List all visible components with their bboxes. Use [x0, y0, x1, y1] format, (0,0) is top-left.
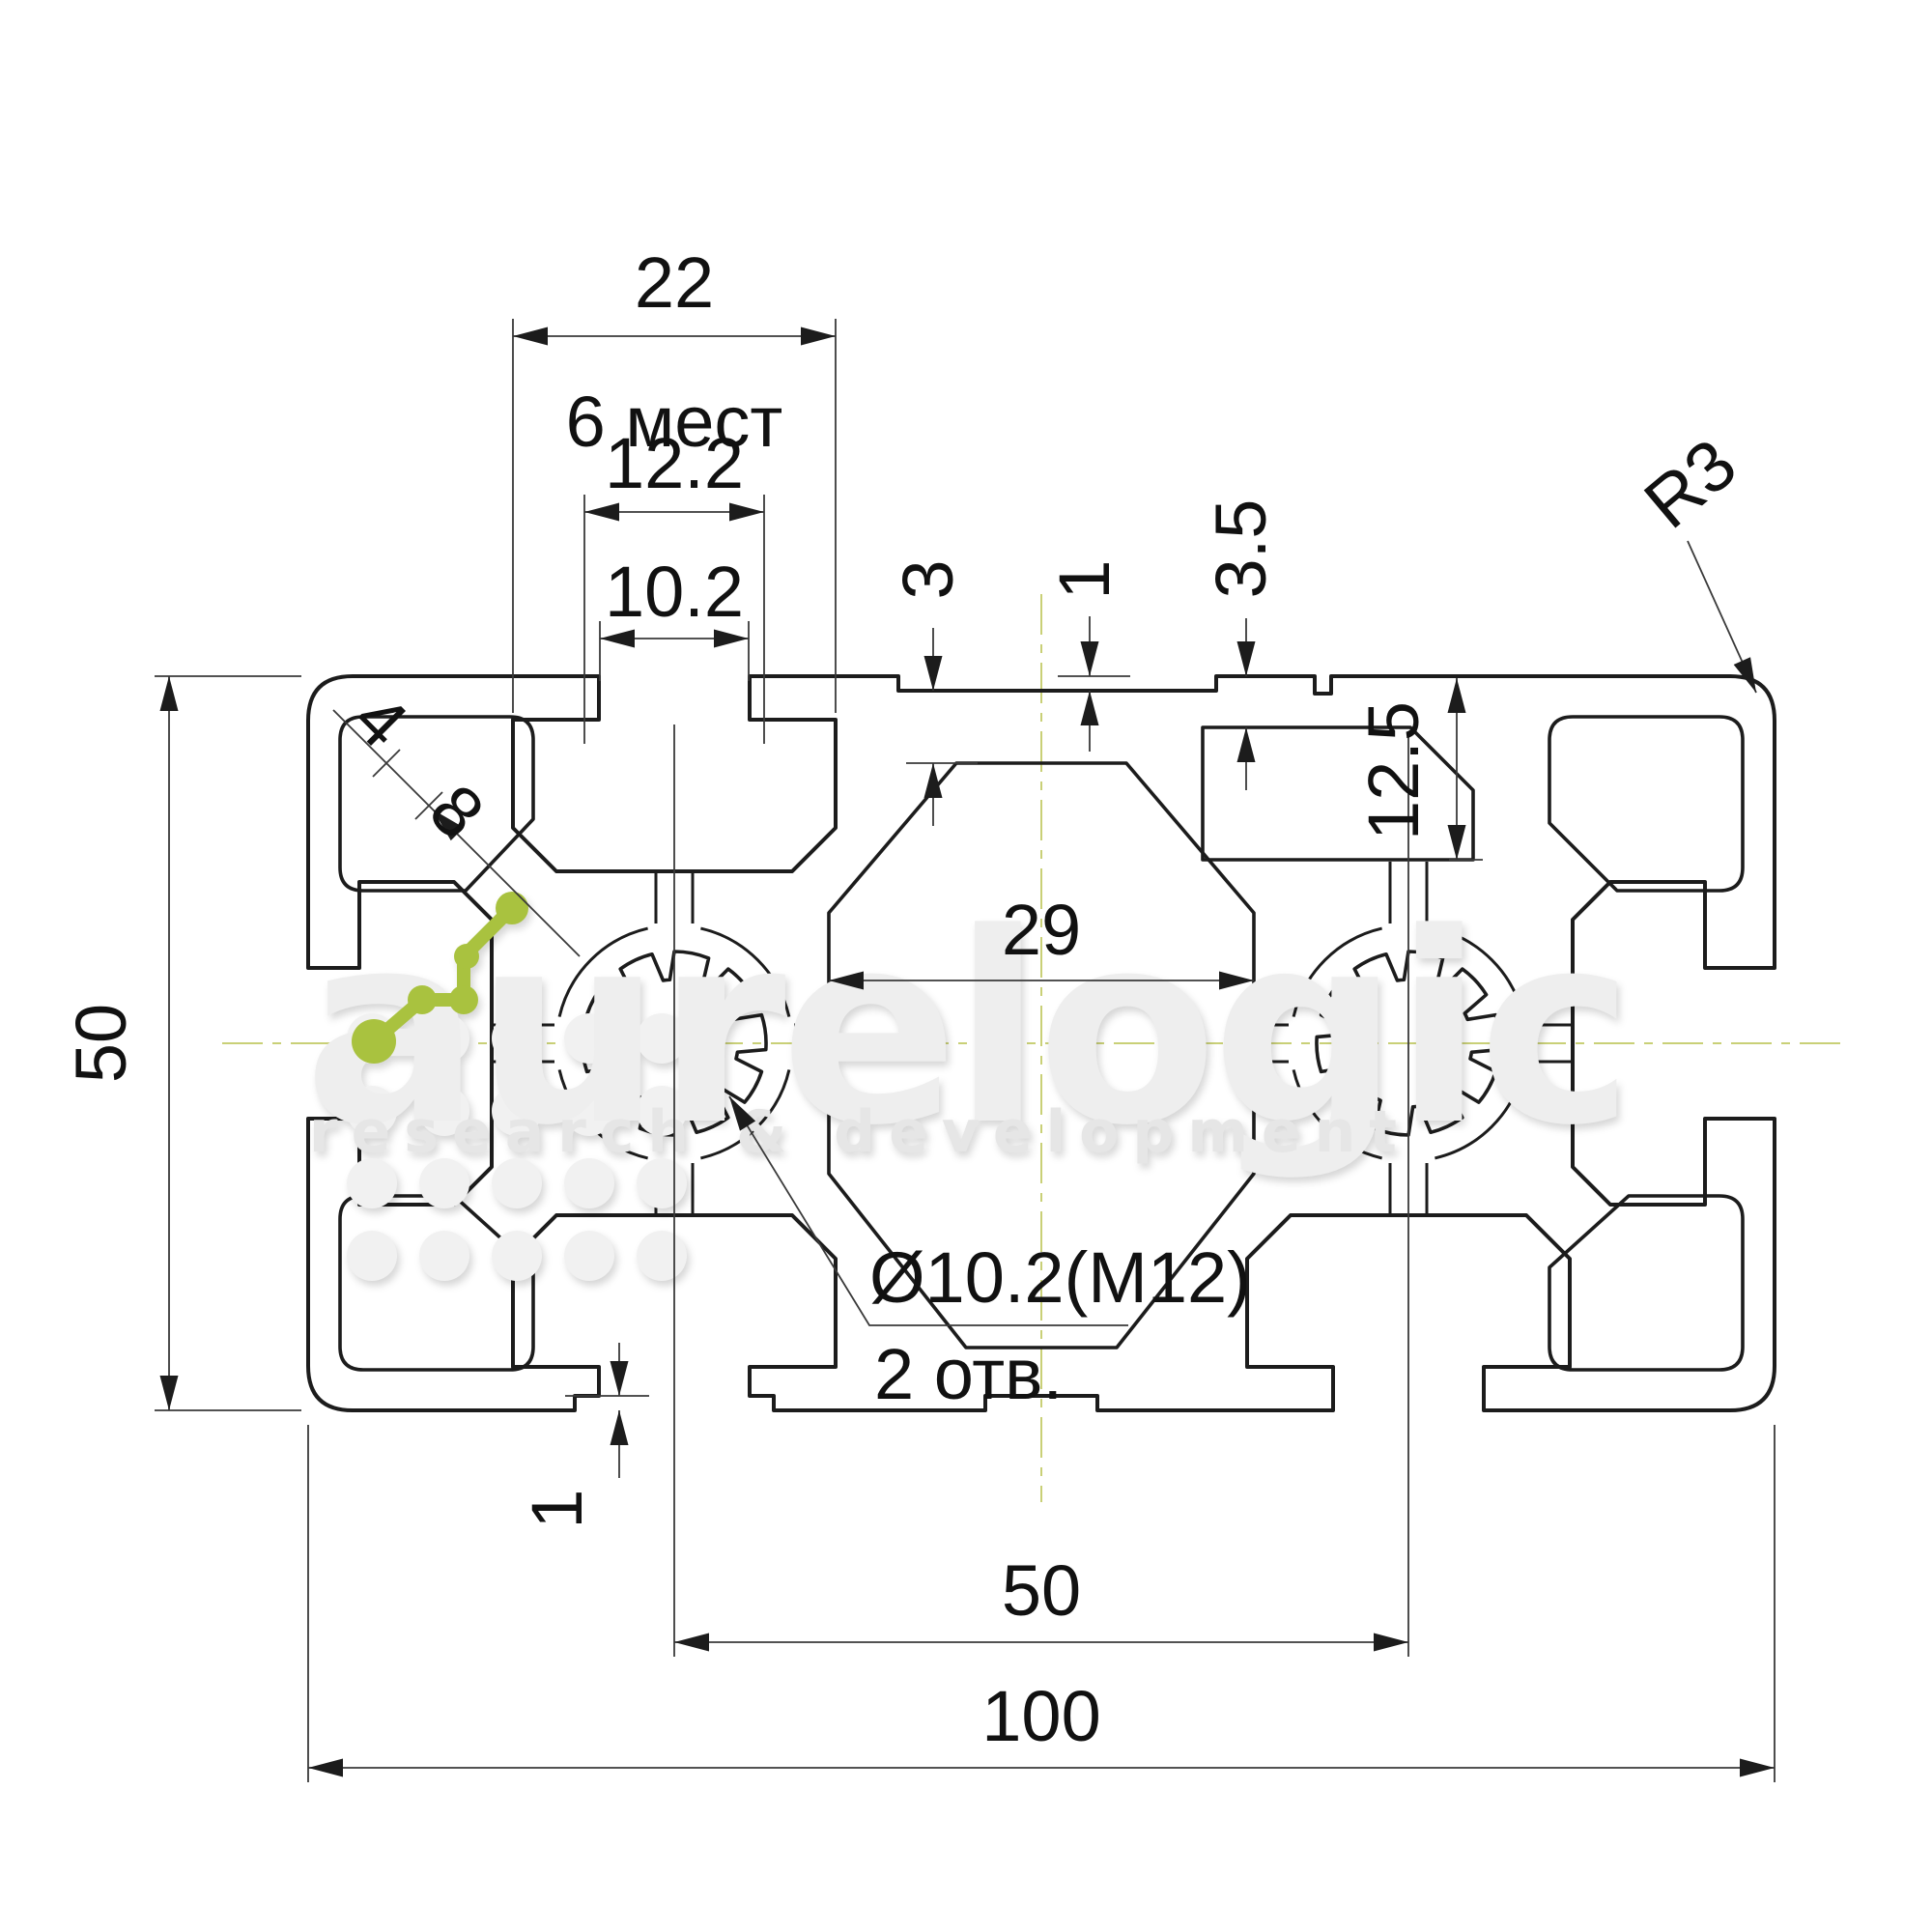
- watermark-dot: [564, 1231, 614, 1281]
- dim-hole-count: 2 отв.: [874, 1334, 1063, 1414]
- dim-wall-thickness: 3: [888, 559, 968, 599]
- dim-lines-bottom-50: [674, 724, 1408, 1657]
- dim-boss-spacing: 50: [1002, 1550, 1081, 1631]
- corner-cavity-bottom-left: [340, 1196, 533, 1370]
- arrowhead-icon: [1448, 678, 1466, 713]
- dim-top-width: 22: [635, 242, 714, 323]
- watermark-dot: [492, 1231, 542, 1281]
- dim-slot-cavity-width: 12.2: [605, 423, 744, 503]
- dim-pad-height: 3.5: [1201, 499, 1281, 599]
- arrowhead-icon: [160, 1376, 179, 1410]
- arrowhead-icon: [714, 630, 749, 648]
- dim-profile-height: 50: [61, 1004, 141, 1083]
- arrowhead-icon: [1448, 825, 1466, 860]
- dim-corner-radius: R3: [1630, 423, 1751, 543]
- dim-core-width: 29: [1002, 890, 1081, 970]
- arrowhead-icon: [160, 676, 179, 711]
- watermark: aurelogic research & development: [303, 878, 1628, 1281]
- arrowhead-icon: [308, 1759, 343, 1777]
- arrowhead-icon: [1237, 641, 1256, 676]
- arrowhead-icon: [924, 656, 943, 691]
- watermark-dot: [637, 1231, 687, 1281]
- logo-dot: [496, 892, 528, 924]
- dim-lines-bottom-step: [565, 1343, 649, 1478]
- arrowhead-icon: [513, 327, 548, 346]
- watermark-dot: [419, 1231, 469, 1281]
- arrowhead-icon: [611, 1410, 629, 1445]
- watermark-dot: [347, 1231, 397, 1281]
- drawing-canvas: aurelogic research & development 22 6 ме…: [0, 0, 1932, 1932]
- logo-dot: [352, 1019, 396, 1064]
- profile-drawing: aurelogic research & development 22 6 ме…: [0, 0, 1932, 1932]
- arrowhead-icon: [611, 1361, 629, 1396]
- arrowhead-icon: [674, 1634, 709, 1652]
- dim-diag-large: 8: [414, 769, 499, 854]
- arrowhead-icon: [1081, 691, 1099, 725]
- arrowhead-icon: [1374, 1634, 1408, 1652]
- logo-dot: [408, 985, 437, 1014]
- corner-cavity-top-right: [1549, 717, 1743, 891]
- logo-dot: [454, 944, 479, 969]
- dim-bottom-step: 1: [517, 1489, 597, 1528]
- corner-cavity-bottom-right: [1549, 1196, 1743, 1370]
- arrowhead-icon: [801, 327, 836, 346]
- dim-face-step: 1: [1044, 559, 1124, 599]
- dim-slot-opening-width: 10.2: [605, 552, 744, 632]
- arrowhead-icon: [1740, 1759, 1775, 1777]
- dim-pocket-depth: 12.5: [1353, 701, 1434, 840]
- arrowhead-icon: [600, 630, 635, 648]
- dim-hole-callout: Ø10.2(M12): [869, 1237, 1251, 1318]
- arrowhead-icon: [1237, 727, 1256, 762]
- arrowhead-icon: [584, 503, 619, 522]
- arrowhead-icon: [729, 503, 764, 522]
- arrowhead-icon: [1081, 641, 1099, 676]
- watermark-tagline: research & development: [309, 1098, 1410, 1166]
- dim-profile-width: 100: [981, 1676, 1100, 1756]
- logo-dot: [449, 985, 478, 1014]
